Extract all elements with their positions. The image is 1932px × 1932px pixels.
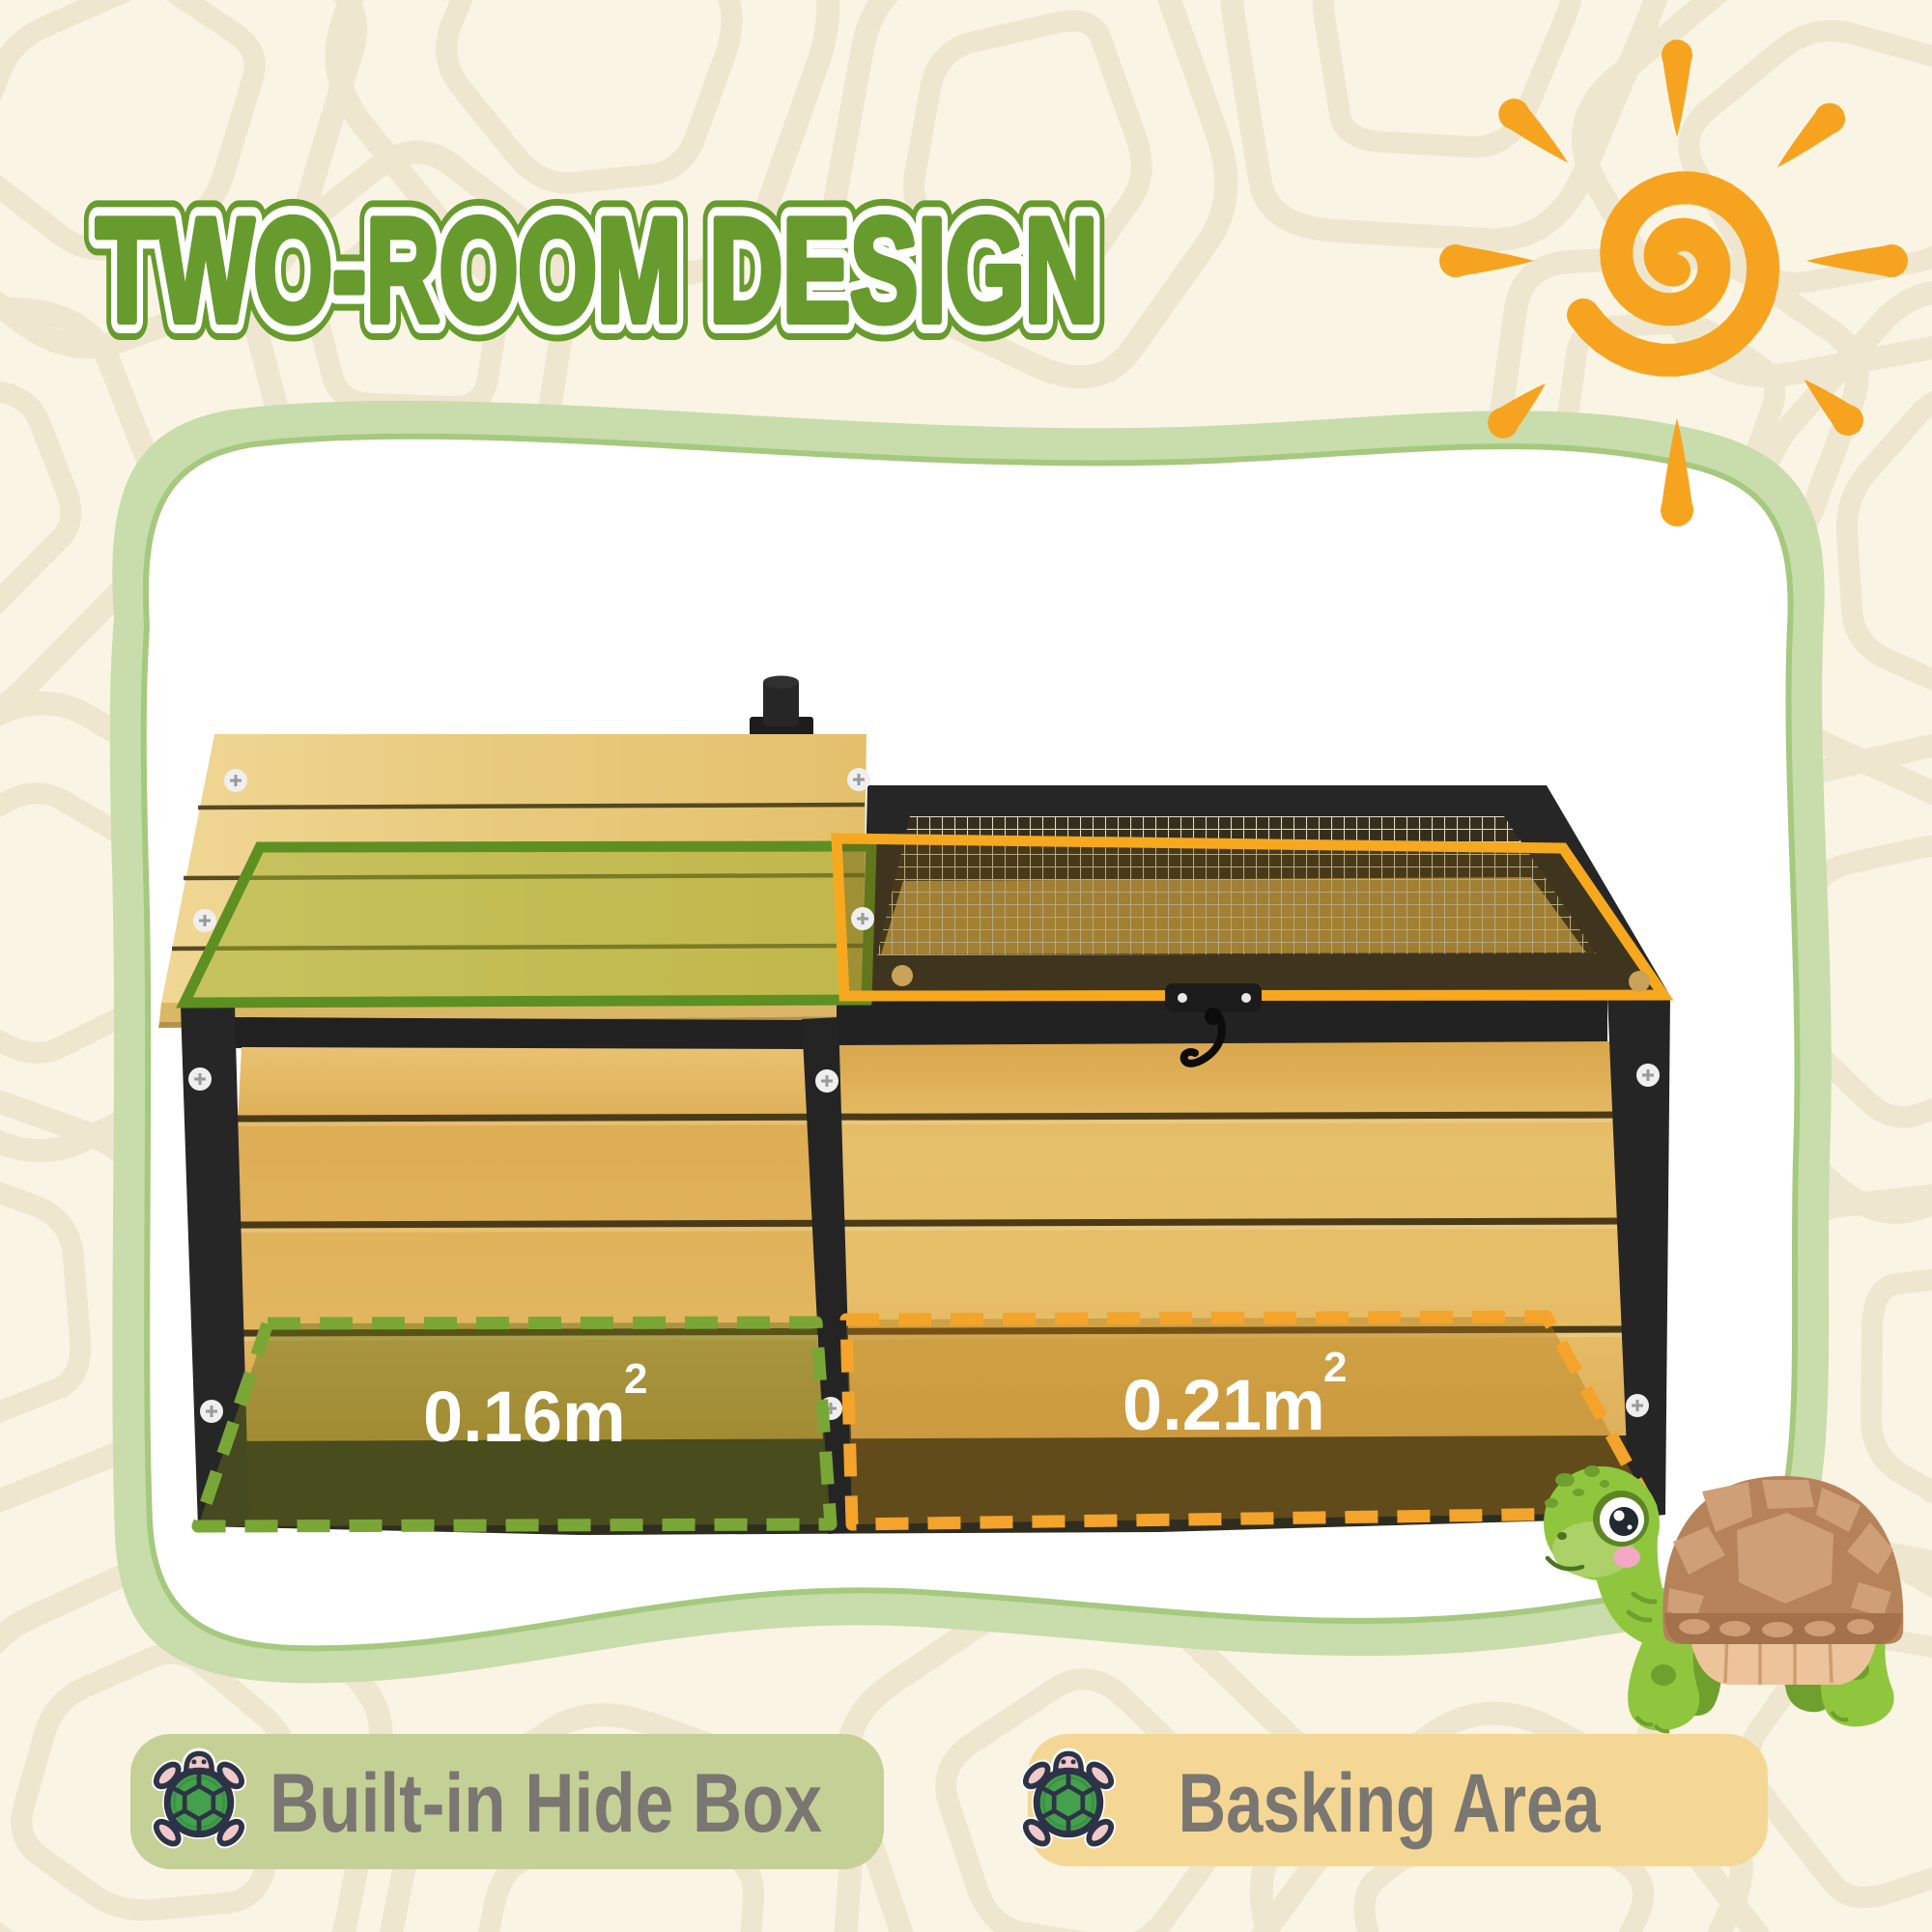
svg-text:0.21m: 0.21m	[1122, 1365, 1325, 1445]
svg-text:Basking Area: Basking Area	[1179, 1757, 1602, 1850]
svg-text:Built-in Hide Box: Built-in Hide Box	[270, 1757, 822, 1850]
svg-text:2: 2	[1323, 1344, 1347, 1391]
svg-text:2: 2	[624, 1355, 647, 1403]
svg-text:TWO-ROOM DESIGN: TWO-ROOM DESIGN	[96, 188, 1097, 353]
svg-text:0.16m: 0.16m	[423, 1377, 626, 1457]
